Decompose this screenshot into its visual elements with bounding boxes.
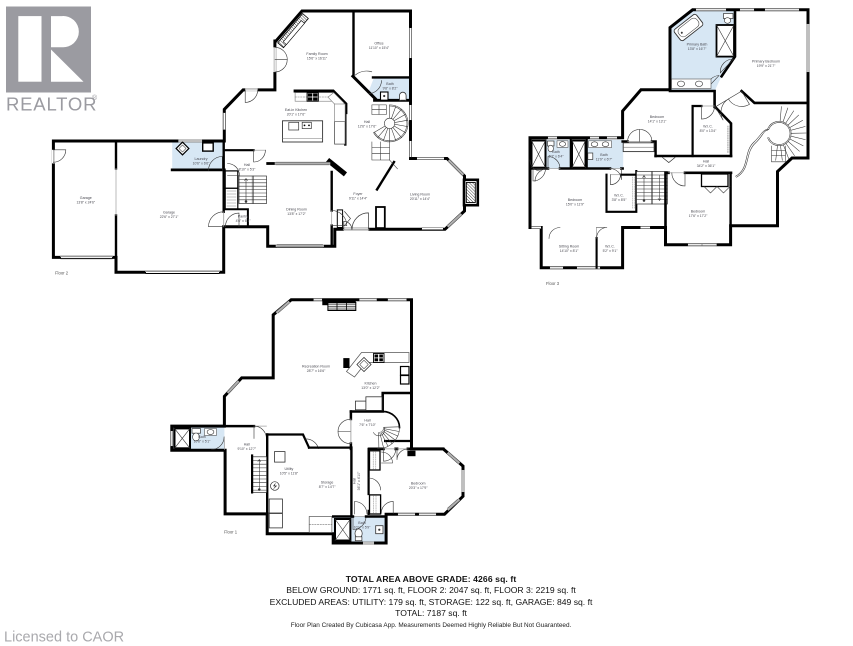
svg-text:Bedroom: Bedroom — [691, 210, 706, 214]
svg-text:Primary Bath: Primary Bath — [687, 43, 708, 47]
svg-text:Bath: Bath — [386, 82, 393, 86]
svg-text:Floor 2: Floor 2 — [55, 271, 69, 276]
svg-text:15'0" x 11'9": 15'0" x 11'9" — [566, 203, 585, 207]
svg-text:10'6" x 6'6": 10'6" x 6'6" — [193, 162, 211, 166]
svg-text:Bath: Bath — [600, 153, 607, 157]
svg-text:20'11" x 14'4": 20'11" x 14'4" — [410, 197, 431, 201]
svg-text:Garage: Garage — [80, 196, 92, 200]
svg-text:10'8" x 5'1": 10'8" x 5'1" — [194, 440, 212, 444]
svg-text:36'1" x 4'10": 36'1" x 4'10" — [357, 471, 361, 490]
svg-text:Hall: Hall — [364, 120, 370, 124]
svg-text:10'5" x 11'8": 10'5" x 11'8" — [280, 472, 299, 476]
svg-text:13'0" x 12'2": 13'0" x 12'2" — [361, 386, 380, 390]
svg-text:22'6" x 27'1": 22'6" x 27'1" — [160, 215, 179, 219]
svg-text:Licensed to CAOR: Licensed to CAOR — [4, 630, 124, 646]
svg-text:Laundry: Laundry — [195, 157, 208, 161]
svg-text:Hall: Hall — [364, 419, 370, 423]
svg-text:4'6" x 6'1": 4'6" x 6'1" — [236, 219, 252, 223]
svg-text:Garage: Garage — [163, 211, 175, 215]
svg-text:Bath: Bath — [358, 521, 365, 525]
svg-text:®: ® — [92, 94, 98, 102]
svg-text:Dining Room: Dining Room — [286, 208, 307, 212]
svg-text:Utility: Utility — [285, 467, 294, 471]
svg-text:Family Room: Family Room — [306, 52, 327, 56]
svg-text:Hall: Hall — [353, 478, 357, 484]
svg-text:8'0" x 13'4": 8'0" x 13'4" — [700, 129, 718, 133]
svg-text:28'7" x 16'6": 28'7" x 16'6" — [307, 369, 326, 373]
svg-text:Sitting Room: Sitting Room — [559, 245, 580, 249]
svg-text:W.I.C.: W.I.C. — [605, 245, 615, 249]
svg-text:Eat-in Kitchen: Eat-in Kitchen — [285, 108, 307, 112]
svg-text:Hall: Hall — [703, 160, 709, 164]
svg-text:Storage: Storage — [321, 481, 334, 485]
svg-text:8'10" x 5'3": 8'10" x 5'3" — [239, 168, 257, 172]
svg-text:9'11" x 14'4": 9'11" x 14'4" — [349, 197, 368, 201]
svg-text:10'1" x 5'9": 10'1" x 5'9" — [354, 526, 372, 530]
svg-text:14'1" x 13'1": 14'1" x 13'1" — [648, 120, 667, 124]
svg-text:Bedroom: Bedroom — [650, 115, 665, 119]
svg-text:14'10" x 8'1": 14'10" x 8'1" — [560, 249, 579, 253]
svg-text:5'2" x 9'1": 5'2" x 9'1" — [603, 249, 619, 253]
svg-text:20'1" x 17'6": 20'1" x 17'6" — [287, 113, 306, 117]
svg-text:Primary Bedroom: Primary Bedroom — [752, 60, 780, 64]
svg-text:9'8" x 8'2": 9'8" x 8'2" — [383, 87, 399, 91]
svg-text:Bath: Bath — [198, 435, 205, 439]
svg-text:3'8" x 8'5": 3'8" x 8'5" — [612, 198, 628, 202]
svg-text:Floor 1: Floor 1 — [224, 530, 238, 535]
svg-text:15'6" x 16'11": 15'6" x 16'11" — [307, 57, 328, 61]
svg-text:12'6" x 17'6": 12'6" x 17'6" — [358, 125, 377, 129]
svg-text:Floor 3: Floor 3 — [546, 281, 560, 286]
svg-text:5'3" x 6'4": 5'3" x 6'4" — [549, 155, 565, 159]
svg-text:Living Room: Living Room — [410, 193, 430, 197]
svg-text:Bedroom: Bedroom — [568, 198, 583, 202]
svg-text:34'2" x 36'1": 34'2" x 36'1" — [697, 164, 716, 168]
svg-text:W.I.C.: W.I.C. — [614, 194, 624, 198]
svg-text:17'6" x 17'2": 17'6" x 17'2" — [689, 214, 708, 218]
svg-text:Hall: Hall — [244, 443, 250, 447]
svg-text:9'10" x 12'7": 9'10" x 12'7" — [237, 447, 256, 451]
svg-text:W.I.C.: W.I.C. — [703, 125, 713, 129]
svg-text:11'9" x 6'7": 11'9" x 6'7" — [596, 158, 613, 162]
svg-text:11'10" x 15'4": 11'10" x 15'4" — [369, 46, 390, 50]
svg-text:8'7" x 14'7": 8'7" x 14'7" — [319, 485, 337, 489]
svg-text:Bedroom: Bedroom — [411, 482, 426, 486]
svg-text:Recreation Room: Recreation Room — [302, 365, 330, 369]
svg-text:Office: Office — [374, 42, 383, 46]
svg-text:13'8" x 17'2": 13'8" x 17'2" — [287, 212, 306, 216]
svg-text:19'9" x 21'7": 19'9" x 21'7" — [757, 64, 776, 68]
svg-text:Pantry: Pantry — [238, 215, 249, 219]
svg-text:Bath: Bath — [552, 150, 559, 154]
svg-text:Foyer: Foyer — [353, 192, 363, 196]
svg-text:20'3" x 17'9": 20'3" x 17'9" — [409, 486, 428, 490]
svg-text:Kitchen: Kitchen — [365, 382, 377, 386]
svg-text:REALTOR: REALTOR — [6, 94, 97, 115]
svg-text:Hall: Hall — [244, 163, 250, 167]
svg-text:7'6" x 7'10": 7'6" x 7'10" — [359, 423, 377, 427]
svg-text:13'8" x 16'7": 13'8" x 16'7" — [688, 47, 707, 51]
svg-text:13'8" x 24'6": 13'8" x 24'6" — [76, 201, 95, 205]
